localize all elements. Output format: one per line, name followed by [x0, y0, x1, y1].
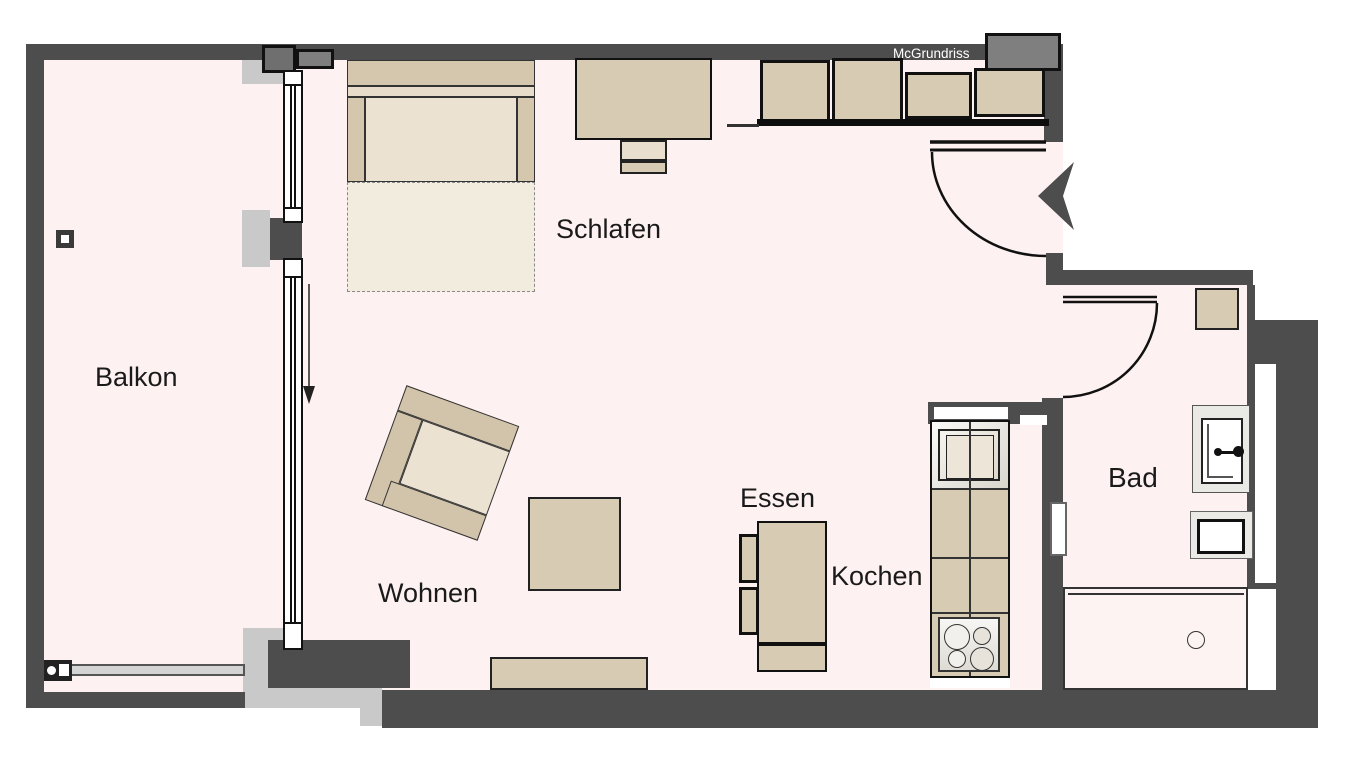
spandrel-mid [242, 210, 270, 267]
entrance-opening [1046, 142, 1063, 256]
sideboard [490, 657, 648, 690]
balcony-drain [56, 230, 74, 248]
shower-inner-line [1068, 593, 1244, 595]
stove [938, 617, 1000, 672]
wall-entry-stub-top [1044, 60, 1063, 142]
shower [1063, 587, 1248, 690]
bed-mattress [365, 97, 517, 182]
wardrobe-baseline-ext [727, 124, 759, 127]
shaft-box-entry [985, 33, 1061, 71]
burner-small-bl [948, 650, 966, 668]
wall-shelf [1195, 288, 1239, 330]
kitchen-top-slot [934, 407, 1008, 419]
dining-chair-2 [739, 587, 759, 635]
toilet [1197, 519, 1245, 554]
label-kitchen: Kochen [831, 561, 923, 592]
wall-pillar-mid [270, 218, 302, 260]
desk-chair-seat [620, 140, 667, 161]
balcony-door-pane2 [294, 278, 296, 622]
watermark: McGrundriss [893, 46, 970, 61]
dining-chair-1 [739, 534, 759, 583]
kitchen-corner-slot [1020, 415, 1047, 425]
wall-outer-right-v [1276, 362, 1318, 728]
wall-left [26, 44, 44, 708]
label-dining: Essen [740, 483, 815, 514]
bed [347, 60, 535, 292]
kitchen-counter [930, 420, 1010, 678]
faucet-head [1233, 446, 1244, 457]
desk [575, 58, 712, 140]
wardrobe-3 [905, 72, 972, 119]
wall-outer-right-h [1253, 320, 1318, 364]
balcony-door-pane1 [290, 278, 292, 622]
coffee-table [528, 497, 621, 591]
burner-large-br [970, 647, 994, 671]
bath-wall-niche [1050, 502, 1067, 556]
balcony-window-cap-top [283, 84, 303, 86]
bed-blanket [347, 182, 535, 292]
bed-rail-right [517, 97, 535, 182]
shower-drain [1187, 631, 1205, 649]
bathroom-sink [1201, 418, 1243, 484]
balcony-railing [70, 664, 245, 676]
wardrobe-1 [760, 60, 830, 122]
bed-headboard [347, 60, 535, 86]
shaft-box-left2 [296, 49, 334, 69]
wall-connector [1247, 583, 1277, 589]
balcony-window-cap-bottom [283, 207, 303, 209]
bed-rail-left [347, 97, 365, 182]
wall-balcony-bottom [26, 692, 245, 708]
burner-small-tr [973, 627, 991, 645]
floorplan: Balkon Schlafen Wohnen Essen Kochen Bad … [0, 0, 1362, 770]
balcony-railing-post [44, 660, 72, 681]
balcony-window [283, 70, 303, 223]
desk-chair-back [620, 161, 667, 174]
label-bathroom: Bad [1108, 462, 1158, 494]
shaft-box-left1 [262, 45, 296, 73]
balcony-door-cap-top [283, 276, 303, 278]
wall-bath-top [1046, 270, 1253, 285]
wardrobe-baseline [757, 119, 1049, 126]
wardrobe-2 [832, 58, 903, 122]
balcony-window-pane1 [290, 84, 292, 209]
railing-post-plate [59, 664, 69, 676]
railing-post-ring [47, 666, 56, 675]
wardrobe-4 [974, 68, 1045, 117]
balcony-door-cap-bottom [283, 622, 303, 624]
label-living: Wohnen [378, 578, 478, 609]
burner-large-tl [944, 624, 970, 650]
balcony-window-pane2 [294, 84, 296, 209]
label-balcony: Balkon [95, 362, 178, 393]
label-bedroom: Schlafen [556, 214, 661, 245]
bed-rail-top [347, 86, 535, 97]
dining-bench [757, 644, 827, 672]
wall-step-light [360, 690, 382, 726]
balcony-sliding-door [283, 258, 303, 650]
wall-bottom [382, 690, 1313, 728]
dining-table [757, 521, 827, 644]
kitchen-bottom-gap [930, 678, 1010, 688]
